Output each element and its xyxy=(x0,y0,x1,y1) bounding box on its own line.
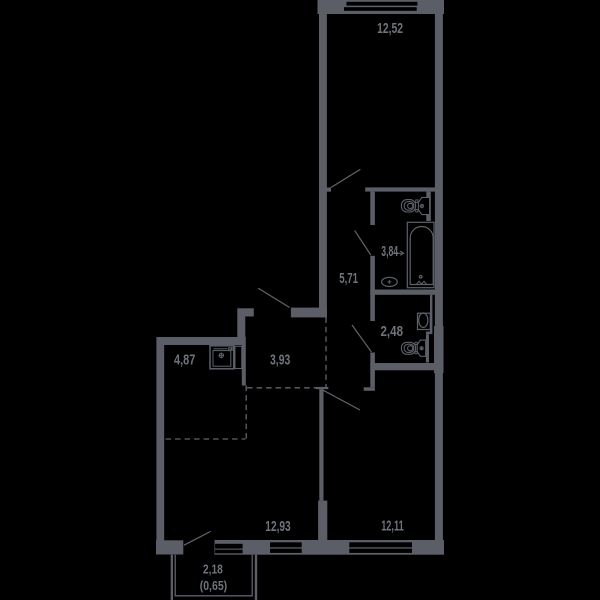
svg-text:3,84: 3,84 xyxy=(381,244,398,260)
svg-text:12,93: 12,93 xyxy=(265,519,290,535)
svg-text:2,18: 2,18 xyxy=(203,563,223,577)
svg-text:2,48: 2,48 xyxy=(381,324,404,340)
svg-text:3,93: 3,93 xyxy=(270,353,290,369)
svg-text:(0,65): (0,65) xyxy=(200,579,228,593)
svg-text:4,87: 4,87 xyxy=(174,353,195,369)
svg-text:5,71: 5,71 xyxy=(339,271,358,287)
svg-text:12,11: 12,11 xyxy=(381,519,404,535)
svg-text:12,52: 12,52 xyxy=(377,21,403,37)
